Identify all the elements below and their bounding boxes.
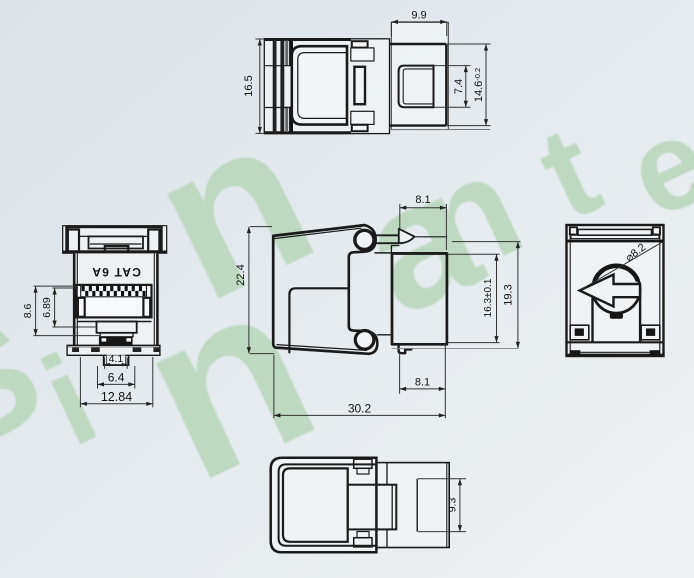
svg-text:22.4: 22.4 [235, 264, 247, 285]
svg-text:30.2: 30.2 [348, 401, 372, 415]
svg-text:7.4: 7.4 [453, 79, 465, 94]
svg-text:16.3±0.1: 16.3±0.1 [483, 278, 494, 317]
svg-text:6.89: 6.89 [41, 297, 53, 318]
svg-text:4.1: 4.1 [109, 353, 124, 365]
svg-text:12.84: 12.84 [101, 390, 132, 404]
svg-text:19.3: 19.3 [503, 284, 515, 305]
svg-text:CAT 6A: CAT 6A [91, 265, 141, 279]
svg-text:16.5: 16.5 [243, 75, 255, 96]
svg-text:9.9: 9.9 [411, 10, 426, 22]
svg-text:8.1: 8.1 [415, 194, 430, 206]
svg-text:6.4: 6.4 [108, 371, 125, 385]
svg-text:8.6: 8.6 [22, 304, 34, 319]
svg-text:8.1: 8.1 [415, 376, 430, 388]
svg-text:9.3: 9.3 [447, 498, 459, 513]
